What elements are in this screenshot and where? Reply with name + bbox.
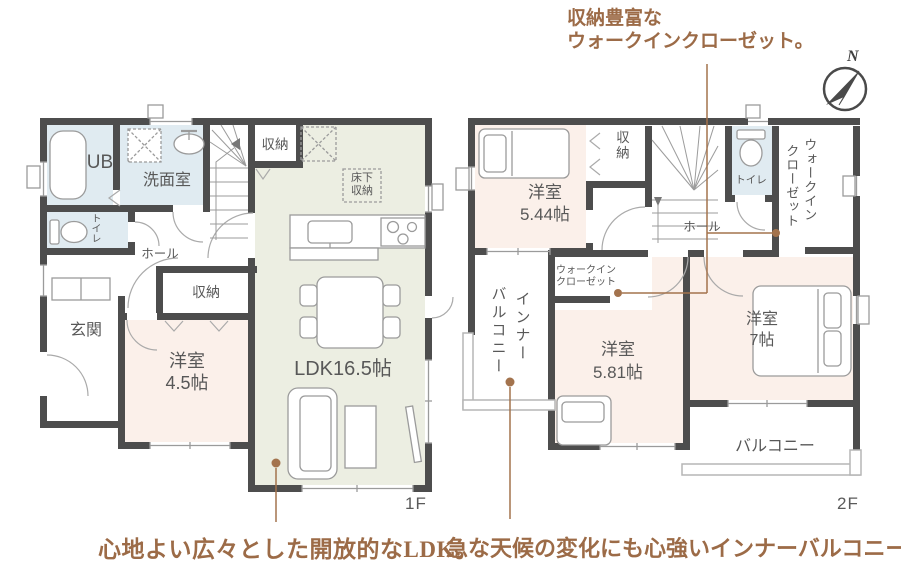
- inner-balcony-bottom-wall: [463, 400, 555, 410]
- storage2f-fold-mark1: [590, 133, 600, 149]
- room-label-bedroom544-1: 洋室: [528, 184, 562, 203]
- inner-balcony-dot: [506, 378, 515, 387]
- floorplan-canvas: 収納豊富な ウォークインクローゼット。 心地よい広々とした開放的なLDK。 急な…: [0, 0, 901, 585]
- kitchen-island-edge: [290, 248, 378, 260]
- caption-top-line1: 収納豊富な: [567, 7, 814, 30]
- room-label-inner-balcony-col1: インナー: [513, 291, 530, 363]
- room-label-hall-1f: ホール: [141, 248, 179, 262]
- room-label-bedroom544-2: 5.44帖: [520, 206, 570, 225]
- room-label-storage-bottom: 収納: [192, 285, 220, 300]
- ldk-door-arc: [208, 213, 253, 258]
- room-label-storage-top: 収納: [262, 138, 289, 153]
- room-label-toilet-1f: トイレ: [89, 213, 100, 243]
- balcony-right-wall: [850, 450, 861, 475]
- room-label-bedroom45-2: 4.5帖: [165, 374, 208, 394]
- caption-top-line2: ウォークインクローゼット。: [567, 30, 814, 53]
- bed7-pillow1: [824, 293, 841, 328]
- room-label-bedroom581-2: 5.81帖: [593, 364, 643, 383]
- room-label-wic-right-col1: ウォークイン: [802, 138, 816, 222]
- room-label-balcony: バルコニー: [735, 438, 815, 456]
- kitchen-sink-icon: [308, 221, 352, 243]
- room-label-storage-2f: 収納: [613, 130, 628, 161]
- coffee-table-icon: [345, 406, 376, 468]
- toilet1f-bowl-icon: [61, 222, 87, 243]
- washroom-door-arc: [173, 212, 203, 242]
- balcony-bottom-wall: [682, 464, 860, 475]
- toilet1f-tank-icon: [50, 220, 59, 244]
- ldk-dot: [272, 459, 281, 468]
- bed544-pillow: [484, 135, 506, 172]
- room-label-bedroom45-1: 洋室: [169, 352, 205, 372]
- bedroom544-door-arc: [602, 207, 645, 250]
- room-label-wic-left-2: クローゼット: [556, 277, 616, 288]
- ldk-exterior-door-arc: [432, 297, 453, 318]
- room-label-bedroom7-2: 7帖: [750, 332, 775, 350]
- floor2-label: 2F: [837, 494, 859, 514]
- caption-bottom-right: 急な天候の変化にも心強いインナーバルコニー。: [446, 531, 901, 563]
- toilet2f-door-arc: [737, 202, 765, 230]
- stairs-2f-arrow: [654, 197, 662, 206]
- compass-north-label: N: [847, 48, 859, 66]
- hall-entrance-door-arc: [128, 258, 178, 308]
- room-label-inner-balcony-col2: バルコニー: [489, 286, 506, 376]
- room-label-bedroom7-1: 洋室: [746, 311, 778, 329]
- room-label-toilet-2f: トイレ: [735, 175, 767, 187]
- room-label-entrance: 玄関: [70, 322, 102, 340]
- room-label-bedroom581-1: 洋室: [601, 341, 635, 360]
- toilet2f-bowl-icon: [740, 140, 762, 166]
- wic-left-dot: [614, 289, 622, 297]
- room-label-ldk: LDK16.5帖: [294, 358, 392, 380]
- room-label-underfloor-2: 収納: [351, 185, 373, 197]
- chair-icon: [300, 285, 317, 306]
- caption-top: 収納豊富な ウォークインクローゼット。: [567, 7, 814, 53]
- chair-icon: [300, 317, 317, 338]
- chair-icon: [383, 317, 400, 338]
- toilet1f-door-arc: [135, 222, 159, 246]
- room-label-bath: UB: [87, 153, 113, 174]
- bathtub-icon: [50, 131, 86, 199]
- room-label-hall-2f: ホール: [683, 221, 721, 235]
- toilet2f-tank-icon: [737, 130, 765, 139]
- room-label-underfloor-1: 床下: [351, 172, 373, 184]
- inner-balcony-left-wall: [463, 333, 473, 409]
- chair-icon: [383, 285, 400, 306]
- bed581-pillow: [562, 402, 604, 422]
- room-label-wic-right-col2: クローゼット: [784, 144, 798, 228]
- room-label-washroom: 洗面室: [143, 172, 191, 190]
- bed7-pillow2: [824, 331, 841, 366]
- room-label-wic-left-1: ウォークイン: [556, 265, 616, 276]
- entrance-door-arc: [47, 355, 88, 396]
- floor1-label: 1F: [405, 494, 427, 514]
- stove-icon: [381, 218, 425, 246]
- dining-table-icon: [317, 277, 383, 348]
- compass-icon: [824, 68, 866, 110]
- caption-bottom-left: 心地よい広々とした開放的なLDK。: [98, 530, 478, 564]
- wic-right-dot: [772, 229, 780, 237]
- stairs-1f: [210, 125, 248, 240]
- floorplan-graphics: [0, 0, 901, 585]
- storage2f-fold-mark2: [590, 159, 600, 175]
